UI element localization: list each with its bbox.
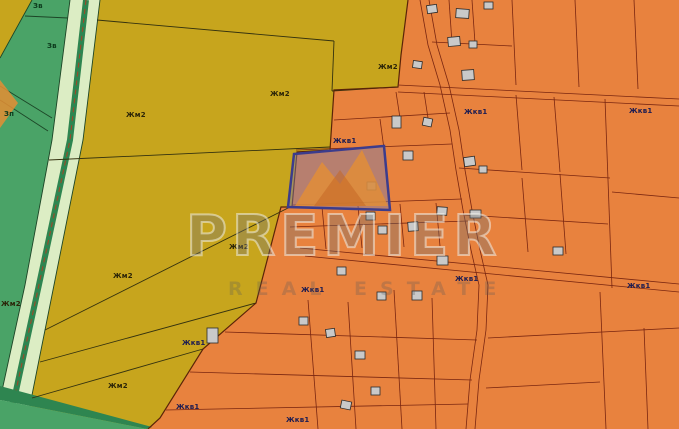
map-canvas [0, 0, 679, 429]
zone-fills-layer [0, 0, 679, 429]
map-viewport[interactable]: ЗвЗвЗпЖм2Жм2Жм2Жм2Жм2Жм2Жм2Жкв1Жкв1Жкв1Ж… [0, 0, 679, 429]
